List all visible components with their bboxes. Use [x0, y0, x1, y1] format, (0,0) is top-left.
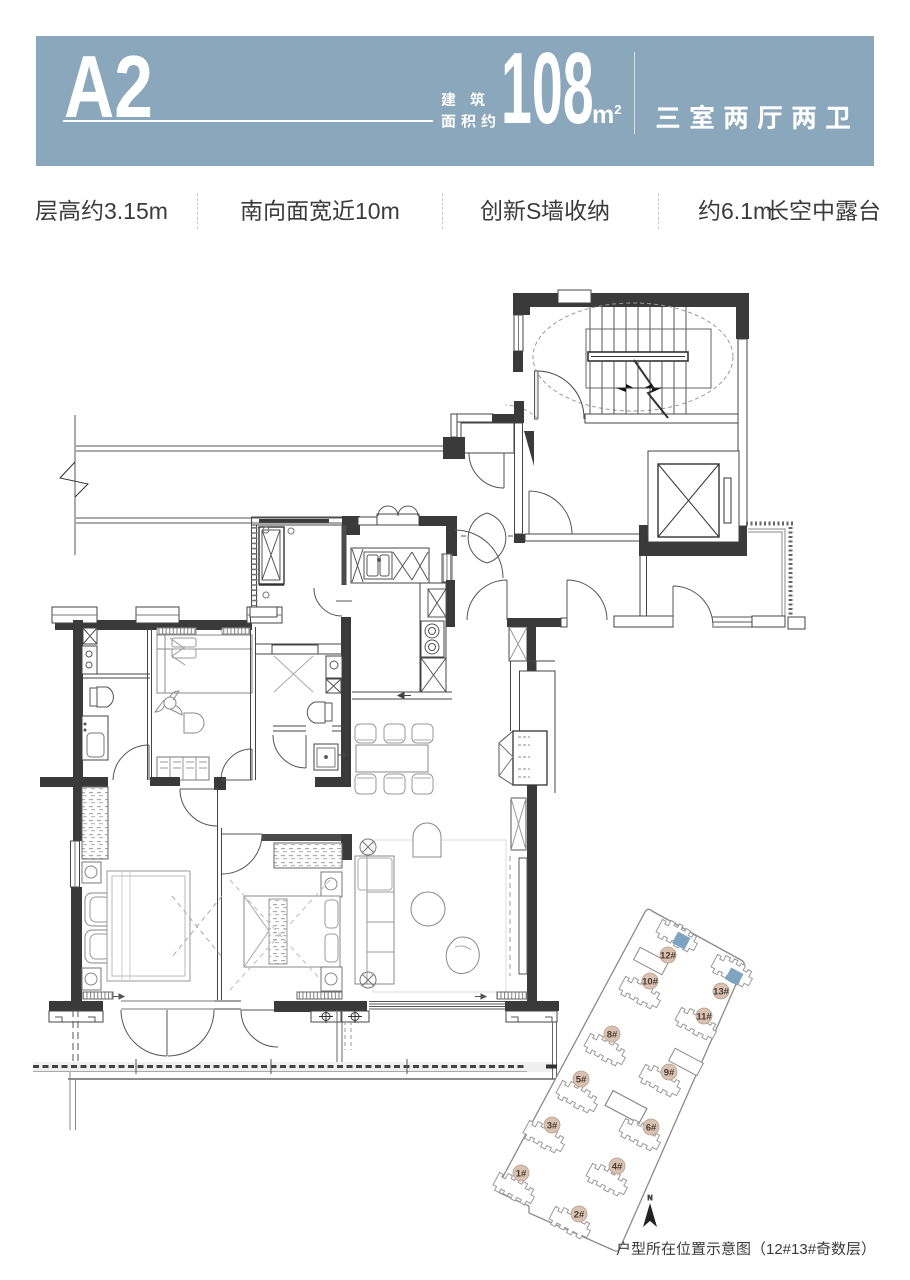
svg-text:6.1m: 6.1m — [721, 198, 772, 224]
svg-text:12#: 12# — [660, 951, 677, 962]
svg-text:5#: 5# — [576, 1075, 587, 1086]
svg-text:9#: 9# — [664, 1068, 675, 1079]
svg-text:2#: 2# — [574, 1210, 585, 1221]
svg-text:S: S — [526, 198, 541, 224]
svg-text:10#: 10# — [642, 977, 659, 988]
svg-text:1#: 1# — [516, 1169, 527, 1180]
svg-text:3#: 3# — [547, 1121, 558, 1132]
svg-text:10m: 10m — [355, 198, 400, 224]
svg-text:8#: 8# — [607, 1030, 618, 1041]
svg-text:3.15m: 3.15m — [104, 198, 168, 224]
svg-text:13#: 13# — [713, 987, 730, 998]
svg-text:11#: 11# — [696, 1012, 712, 1023]
svg-text:N: N — [647, 1195, 652, 1202]
svg-text:12#13#: 12#13# — [766, 1241, 817, 1258]
svg-text:6#: 6# — [646, 1123, 657, 1134]
svg-text:4#: 4# — [612, 1162, 623, 1173]
